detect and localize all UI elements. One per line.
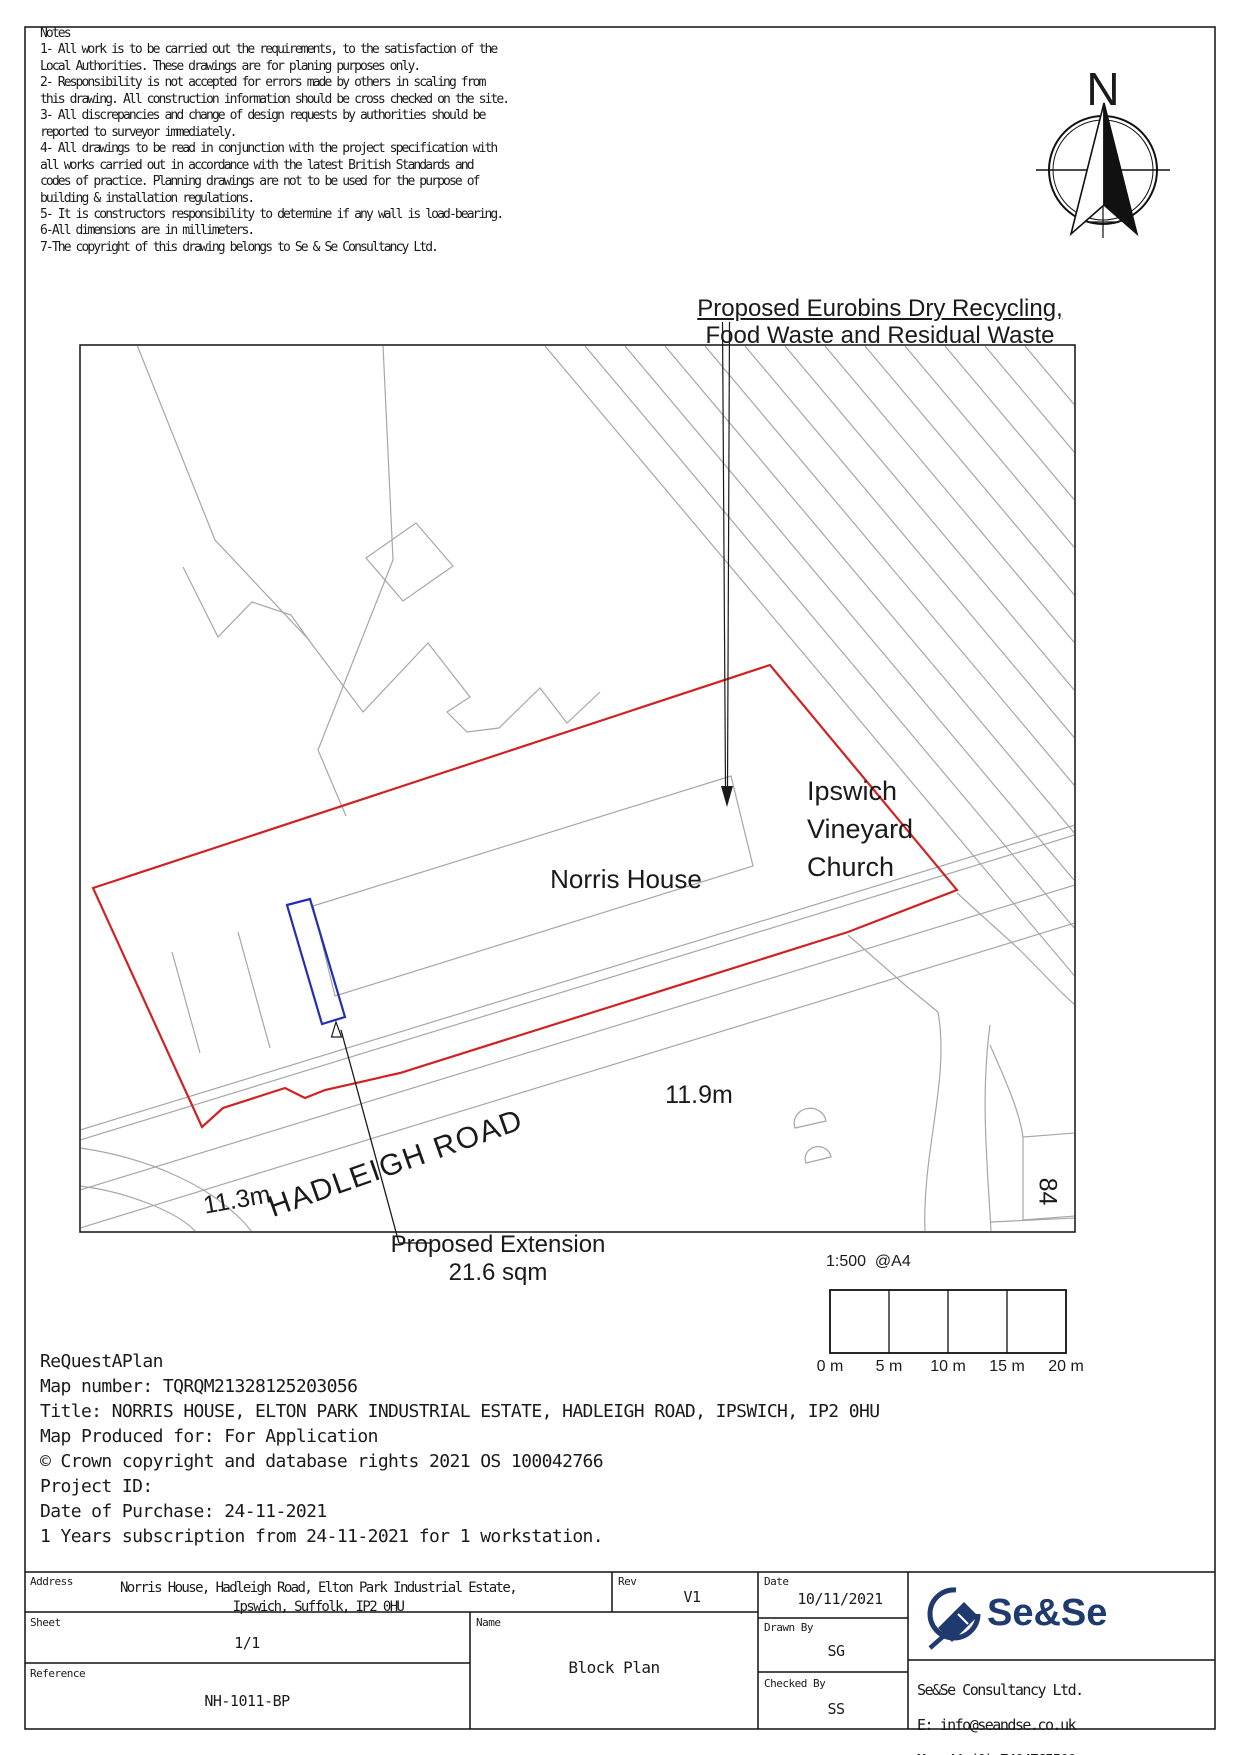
label-church-line3: Church: [807, 848, 913, 886]
annotation-eurobins-line2: Food Waste and Residual Waste: [697, 322, 1063, 349]
company-email: E: info@seandse.co.uk: [917, 1717, 1083, 1735]
road-curve: [990, 1045, 1023, 1137]
kerb-line: [80, 923, 1075, 1228]
arrowhead-up: [332, 1022, 342, 1037]
company-name: Se&Se Consultancy Ltd.: [917, 1682, 1083, 1700]
building-84-outline: [1023, 1133, 1075, 1220]
rev-value: V1: [683, 1588, 700, 1606]
label-norris-house: Norris House: [550, 864, 702, 895]
leader-eurobins: [721, 322, 733, 807]
parcel-edge: [318, 345, 393, 816]
drawn-by-label: Drawn By: [764, 1621, 813, 1634]
road-bend: [957, 893, 1075, 1005]
sheet-label: Sheet: [30, 1616, 61, 1629]
road-curve: [925, 1012, 941, 1232]
scale-tick-3: 15 m: [989, 1358, 1025, 1376]
drawing-sheet: Notes 1- All work is to be carried out t…: [0, 0, 1240, 1755]
proposed-extension-outline: [287, 899, 345, 1024]
name-value: Block Plan: [568, 1658, 659, 1677]
tree-symbol: [805, 1147, 831, 1163]
scale-tick-4: 20 m: [1048, 1358, 1084, 1376]
address-value-line2: Ipswich, Suffolk, IP2 0HU: [120, 1598, 516, 1617]
yard-line: [172, 952, 200, 1053]
site-boundary: [93, 665, 957, 1127]
scale-bar: [830, 1290, 1066, 1353]
arrowhead-down: [721, 786, 733, 807]
reference-value: NH-1011-BP: [204, 1692, 289, 1710]
annotation-extension-line2: 21.6 sqm: [391, 1259, 606, 1287]
notes-block: Notes 1- All work is to be carried out t…: [40, 26, 510, 256]
label-spot-height-site: 11.9m: [665, 1081, 733, 1110]
annotation-extension-line1: Proposed Extension: [391, 1231, 606, 1259]
label-building-number-84: 84: [1033, 1178, 1062, 1206]
north-compass: [1036, 103, 1170, 238]
parcel-edge: [137, 345, 310, 641]
scale-title: 1:500 @A4: [826, 1253, 911, 1271]
map-border: [80, 345, 1075, 1232]
leader-extension: [332, 1022, 431, 1243]
reference-label: Reference: [30, 1667, 85, 1680]
annotation-extension: Proposed Extension 21.6 sqm: [391, 1231, 606, 1287]
road-line: [991, 1218, 1075, 1222]
road-curve: [985, 1025, 991, 1232]
kerb-line: [80, 885, 1075, 1190]
name-label: Name: [476, 1616, 501, 1629]
label-church: Ipswich Vineyard Church: [807, 772, 913, 886]
sese-logo-text: Se&Se: [987, 1592, 1107, 1635]
date-label: Date: [764, 1575, 789, 1588]
address-value-line1: Norris House, Hadleigh Road, Elton Park …: [120, 1579, 516, 1598]
sheet-value: 1/1: [234, 1634, 260, 1652]
compass-n-label: N: [1086, 62, 1119, 116]
parcel-zigzag: [183, 567, 600, 732]
annotation-eurobins-line1: Proposed Eurobins Dry Recycling,: [697, 295, 1063, 322]
checked-by-label: Checked By: [764, 1677, 825, 1690]
small-building: [366, 523, 453, 601]
drawn-by-value: SG: [827, 1642, 844, 1660]
rev-label: Rev: [618, 1575, 636, 1588]
map-info-block: ReQuestAPlan Map number: TQRQM2132812520…: [40, 1349, 960, 1549]
sese-logo-icon: [930, 1590, 978, 1648]
address-label: Address: [30, 1575, 73, 1588]
yard-line: [238, 932, 270, 1048]
kerb-curve: [80, 1186, 196, 1232]
date-value: 10/11/2021: [797, 1590, 882, 1608]
company-contact-block: Se&Se Consultancy Ltd. E: info@seandse.c…: [917, 1664, 1083, 1755]
tree-symbol: [794, 1108, 826, 1128]
address-value: Norris House, Hadleigh Road, Elton Park …: [120, 1579, 516, 1617]
label-church-line1: Ipswich: [807, 772, 913, 810]
checked-by-value: SS: [827, 1700, 844, 1718]
label-church-line2: Vineyard: [807, 810, 913, 848]
road-bend: [848, 935, 938, 1012]
annotation-eurobins: Proposed Eurobins Dry Recycling, Food Wa…: [697, 295, 1063, 349]
